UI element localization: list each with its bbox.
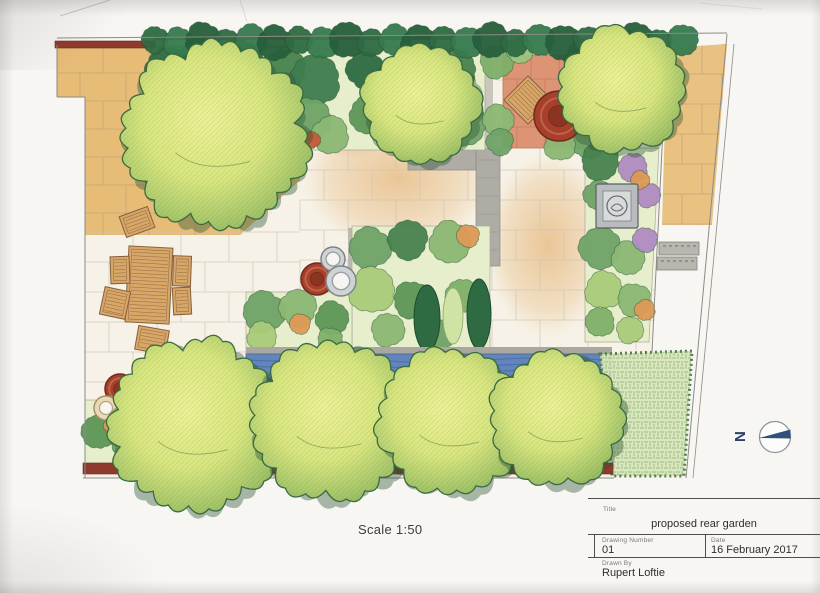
outside-steps	[657, 242, 699, 270]
title-block: Title proposed rear garden Drawing Numbe…	[588, 495, 820, 593]
paper-crease-lines	[60, 0, 762, 22]
title-block-rule	[705, 534, 706, 557]
drawn-by-label: Drawn By	[602, 560, 632, 567]
title-block-rule	[588, 498, 820, 499]
north-arrow: N	[726, 416, 798, 460]
scanned-plan-sheet: { "sheet": { "scale_label": "Scale 1:50"…	[0, 0, 820, 593]
north-letter: N	[732, 431, 749, 442]
title-value: proposed rear garden	[588, 518, 820, 530]
title-block-rule	[588, 534, 820, 535]
drawing-number-label: Drawing Number	[602, 537, 654, 544]
title-label: Title	[603, 506, 616, 513]
date-value: 16 February 2017	[711, 544, 798, 556]
title-block-rule	[588, 557, 820, 558]
scale-label: Scale 1:50	[358, 522, 422, 537]
drawn-by-value: Rupert Loftie	[602, 567, 665, 579]
drawing-number-value: 01	[602, 544, 614, 556]
square-water-feature	[596, 184, 638, 228]
date-label: Date	[711, 537, 726, 544]
title-block-rule	[594, 534, 595, 557]
